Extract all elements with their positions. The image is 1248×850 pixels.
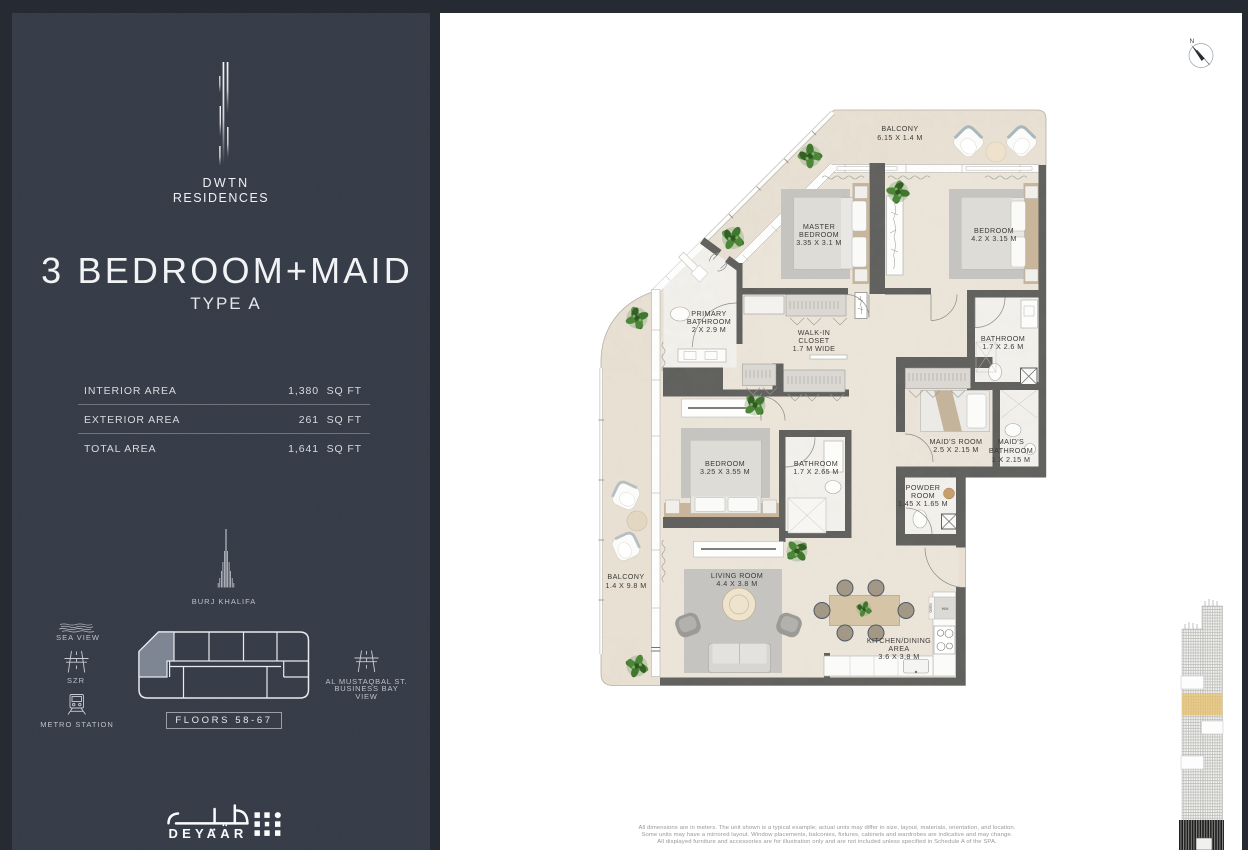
svg-text:BATHROOM: BATHROOM bbox=[989, 446, 1033, 455]
svg-text:1.7 M WIDE: 1.7 M WIDE bbox=[793, 344, 836, 353]
svg-text:BALCONY: BALCONY bbox=[881, 124, 918, 133]
svg-text:3.6 X 3.8 M: 3.6 X 3.8 M bbox=[878, 652, 919, 661]
svg-text:1.4 X 9.8 M: 1.4 X 9.8 M bbox=[605, 581, 646, 590]
svg-text:4.2 X 3.15 M: 4.2 X 3.15 M bbox=[971, 234, 1017, 243]
svg-text:BALCONY: BALCONY bbox=[607, 572, 644, 581]
svg-text:3.25 X 3.55 M: 3.25 X 3.55 M bbox=[700, 467, 750, 476]
svg-text:MAID'S: MAID'S bbox=[998, 437, 1025, 446]
svg-text:4.4 X 3.8 M: 4.4 X 3.8 M bbox=[716, 579, 757, 588]
svg-text:1.7 X 2.65 M: 1.7 X 2.65 M bbox=[793, 467, 839, 476]
svg-text:N: N bbox=[1190, 38, 1195, 45]
svg-text:1.7 X 2.6 M: 1.7 X 2.6 M bbox=[982, 342, 1023, 351]
svg-text:1 X 2.15 M: 1 X 2.15 M bbox=[992, 455, 1031, 464]
svg-text:6.15 X 1.4 M: 6.15 X 1.4 M bbox=[877, 133, 923, 142]
svg-text:WM: WM bbox=[942, 607, 949, 611]
svg-text:2.5 X 2.15 M: 2.5 X 2.15 M bbox=[933, 445, 979, 454]
svg-text:1.45 X 1.65 M: 1.45 X 1.65 M bbox=[898, 499, 948, 508]
svg-text:2 X 2.9 M: 2 X 2.9 M bbox=[692, 325, 726, 334]
svg-text:OVEN: OVEN bbox=[929, 603, 933, 613]
svg-text:3.35 X 3.1 M: 3.35 X 3.1 M bbox=[796, 238, 842, 247]
